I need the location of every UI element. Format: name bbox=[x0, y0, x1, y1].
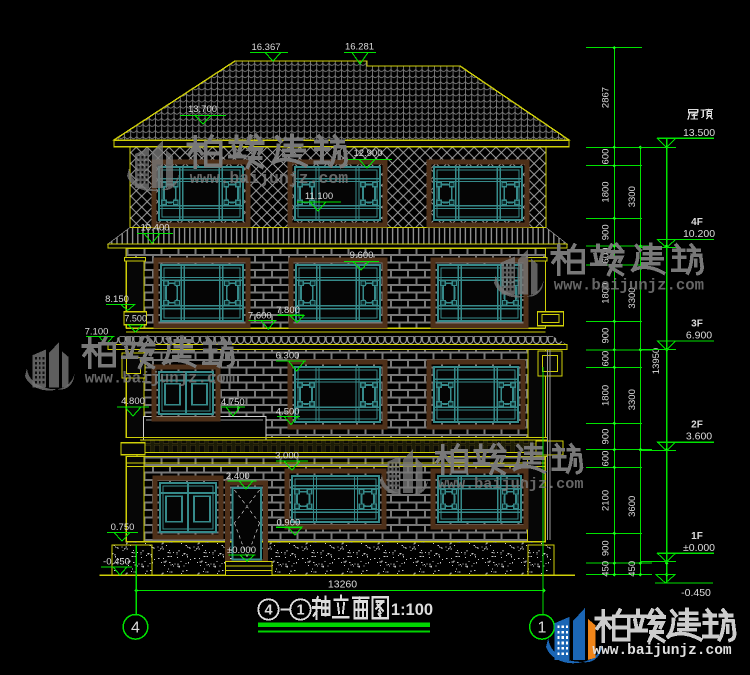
svg-text:7.800: 7.800 bbox=[276, 305, 300, 316]
svg-text:4.800: 4.800 bbox=[121, 396, 145, 407]
svg-text:12.900: 12.900 bbox=[353, 148, 382, 159]
svg-text:10.200: 10.200 bbox=[683, 228, 715, 240]
svg-text:13950: 13950 bbox=[651, 348, 662, 374]
svg-text:±0.000: ±0.000 bbox=[683, 542, 715, 554]
svg-text:4: 4 bbox=[264, 603, 272, 619]
svg-text:4F: 4F bbox=[691, 217, 703, 228]
svg-text:900: 900 bbox=[601, 224, 612, 240]
svg-text:8.150: 8.150 bbox=[105, 294, 129, 305]
svg-text:3F: 3F bbox=[691, 318, 703, 329]
svg-text:450: 450 bbox=[627, 561, 638, 577]
svg-text:900: 900 bbox=[601, 540, 612, 556]
svg-text:600: 600 bbox=[601, 149, 612, 165]
svg-text:1:100: 1:100 bbox=[391, 601, 433, 619]
svg-text:6.900: 6.900 bbox=[686, 329, 712, 341]
svg-text:7.600: 7.600 bbox=[248, 311, 272, 322]
svg-text:9.600: 9.600 bbox=[350, 250, 374, 261]
svg-text:4.750: 4.750 bbox=[221, 397, 245, 408]
svg-text:7.500: 7.500 bbox=[124, 314, 147, 324]
svg-text:900: 900 bbox=[601, 429, 612, 445]
svg-text:www.baijunjz.com: www.baijunjz.com bbox=[592, 643, 732, 659]
svg-text:1800: 1800 bbox=[601, 181, 612, 202]
svg-text:±0.000: ±0.000 bbox=[227, 545, 256, 556]
svg-text:www.baijunjz.com: www.baijunjz.com bbox=[554, 277, 704, 295]
svg-text:900: 900 bbox=[601, 328, 612, 344]
svg-text:-0.450: -0.450 bbox=[103, 557, 130, 568]
svg-text:4.500: 4.500 bbox=[276, 407, 300, 418]
svg-text:10.400: 10.400 bbox=[140, 223, 169, 234]
svg-text:11.100: 11.100 bbox=[305, 191, 333, 202]
svg-text:3600: 3600 bbox=[627, 496, 638, 517]
svg-text:16.367: 16.367 bbox=[251, 42, 280, 53]
svg-text:600: 600 bbox=[601, 351, 612, 367]
svg-text:0.750: 0.750 bbox=[111, 522, 135, 533]
svg-text:16.281: 16.281 bbox=[345, 42, 374, 53]
svg-text:-0.450: -0.450 bbox=[681, 587, 711, 599]
svg-text:1800: 1800 bbox=[601, 385, 612, 406]
svg-text:3300: 3300 bbox=[627, 389, 638, 410]
svg-text:2100: 2100 bbox=[601, 490, 612, 511]
svg-text:3300: 3300 bbox=[627, 186, 638, 207]
svg-text:4: 4 bbox=[131, 620, 140, 637]
svg-text:2F: 2F bbox=[691, 420, 703, 431]
svg-text:1: 1 bbox=[296, 603, 304, 619]
svg-text:13260: 13260 bbox=[328, 579, 357, 591]
svg-text:3.000: 3.000 bbox=[275, 451, 299, 462]
svg-text:600: 600 bbox=[601, 451, 612, 467]
svg-text:13.500: 13.500 bbox=[683, 127, 715, 139]
svg-text:13.700: 13.700 bbox=[188, 104, 217, 115]
svg-text:1: 1 bbox=[538, 620, 547, 637]
svg-text:1F: 1F bbox=[691, 531, 703, 542]
svg-text:www.baijunjz.com: www.baijunjz.com bbox=[438, 475, 584, 493]
svg-text:2867: 2867 bbox=[601, 87, 612, 108]
svg-text:www.baijunjz.com: www.baijunjz.com bbox=[190, 169, 349, 188]
svg-text:450: 450 bbox=[601, 561, 612, 577]
svg-text:www.baijunjz.com: www.baijunjz.com bbox=[85, 370, 235, 388]
svg-text:6.300: 6.300 bbox=[276, 351, 300, 362]
svg-text:3.600: 3.600 bbox=[686, 431, 712, 443]
